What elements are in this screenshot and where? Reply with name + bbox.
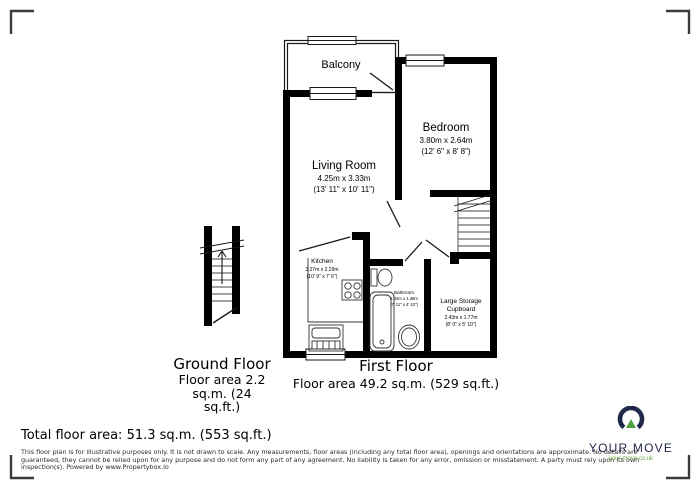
storage-dims-ft: (8' 0" x 5' 10") [446,322,477,328]
bathroom-dims-m: 2.42m x 1.48m [390,296,418,301]
bedroom-door [387,201,400,227]
bedroom-dims-m: 3.80m x 2.64m [420,136,473,145]
kitchen-sink-icon [309,325,343,351]
toilet-icon [371,269,392,286]
bathroom-fixtures [370,269,420,351]
bedroom-label: Bedroom [423,122,470,134]
ground-floor-stairs [200,226,244,326]
bathroom-dims-ft: (7' 11" x 4' 10") [390,302,418,307]
bedroom-window [406,55,444,66]
ground-floor-area-2: sq.m. (24 [152,387,292,401]
floorplan-page: Balcony Living Room 4.25m x 3.33m (13' 1… [0,0,700,489]
your-move-logo: YOUR MOVE your-move.co.uk [585,406,677,462]
storage-dims-m: 2.43m x 1.77m [444,315,477,321]
disclaimer: This floor plan is for illustrative purp… [21,449,671,472]
living-room-dims-ft: (13' 11" x 10' 11") [313,185,375,194]
stair-break-line [454,200,493,212]
first-floor-caption: First Floor Floor area 49.2 sq.m. (529 s… [286,358,506,391]
kitchen-dims-ft: (10' 9" x 7' 6") [307,274,338,280]
first-floor-plan: Balcony Living Room 4.25m x 3.33m (13' 1… [283,37,497,361]
kitchen-dims-m: 3.27m x 2.29m [305,267,338,273]
living-room-label: Living Room [312,160,376,172]
storage-label-1: Large Storage [440,298,482,305]
entrance-door [213,308,236,323]
ground-floor-title: Ground Floor [152,356,292,373]
living-room-dims-m: 4.25m x 3.33m [318,174,371,183]
balcony-door [370,73,393,90]
disclaimer-line-3: inspection(s). Powered by www.Propertybo… [21,464,671,472]
stair-direction-arrow-icon [218,251,226,284]
kitchen-label: Kitchen [311,258,333,265]
hob-icon [342,280,362,300]
bedroom-dims-ft: (12' 6" x 8' 8") [421,147,471,156]
balcony-label: Balcony [321,59,361,71]
living-room-window [310,88,356,100]
storage-door [426,240,449,257]
storage-label-2: Cupboard [447,306,476,313]
your-move-brand: YOUR MOVE [585,441,677,455]
corner-top-right-icon [666,11,689,34]
bathroom-door [405,242,422,261]
basin-icon [399,325,420,349]
living-room-door [299,237,350,251]
bathroom-label: Bathroom [394,290,414,295]
total-floor-area: Total floor area: 51.3 sq.m. (553 sq.ft.… [21,428,272,443]
first-floor-title: First Floor [286,358,506,375]
first-floor-stairs [454,194,493,252]
your-move-url: your-move.co.uk [585,456,677,462]
your-move-horseshoe-icon [585,406,677,436]
ground-floor-area-3: sq.ft.) [152,400,292,414]
ground-floor-caption: Ground Floor Floor area 2.2 sq.m. (24 sq… [152,356,292,414]
first-floor-area: Floor area 49.2 sq.m. (529 sq.ft.) [286,377,506,391]
windows [306,55,444,360]
balcony-window [308,37,356,45]
corner-top-left-icon [11,11,34,34]
ground-floor-area-1: Floor area 2.2 [152,373,292,387]
